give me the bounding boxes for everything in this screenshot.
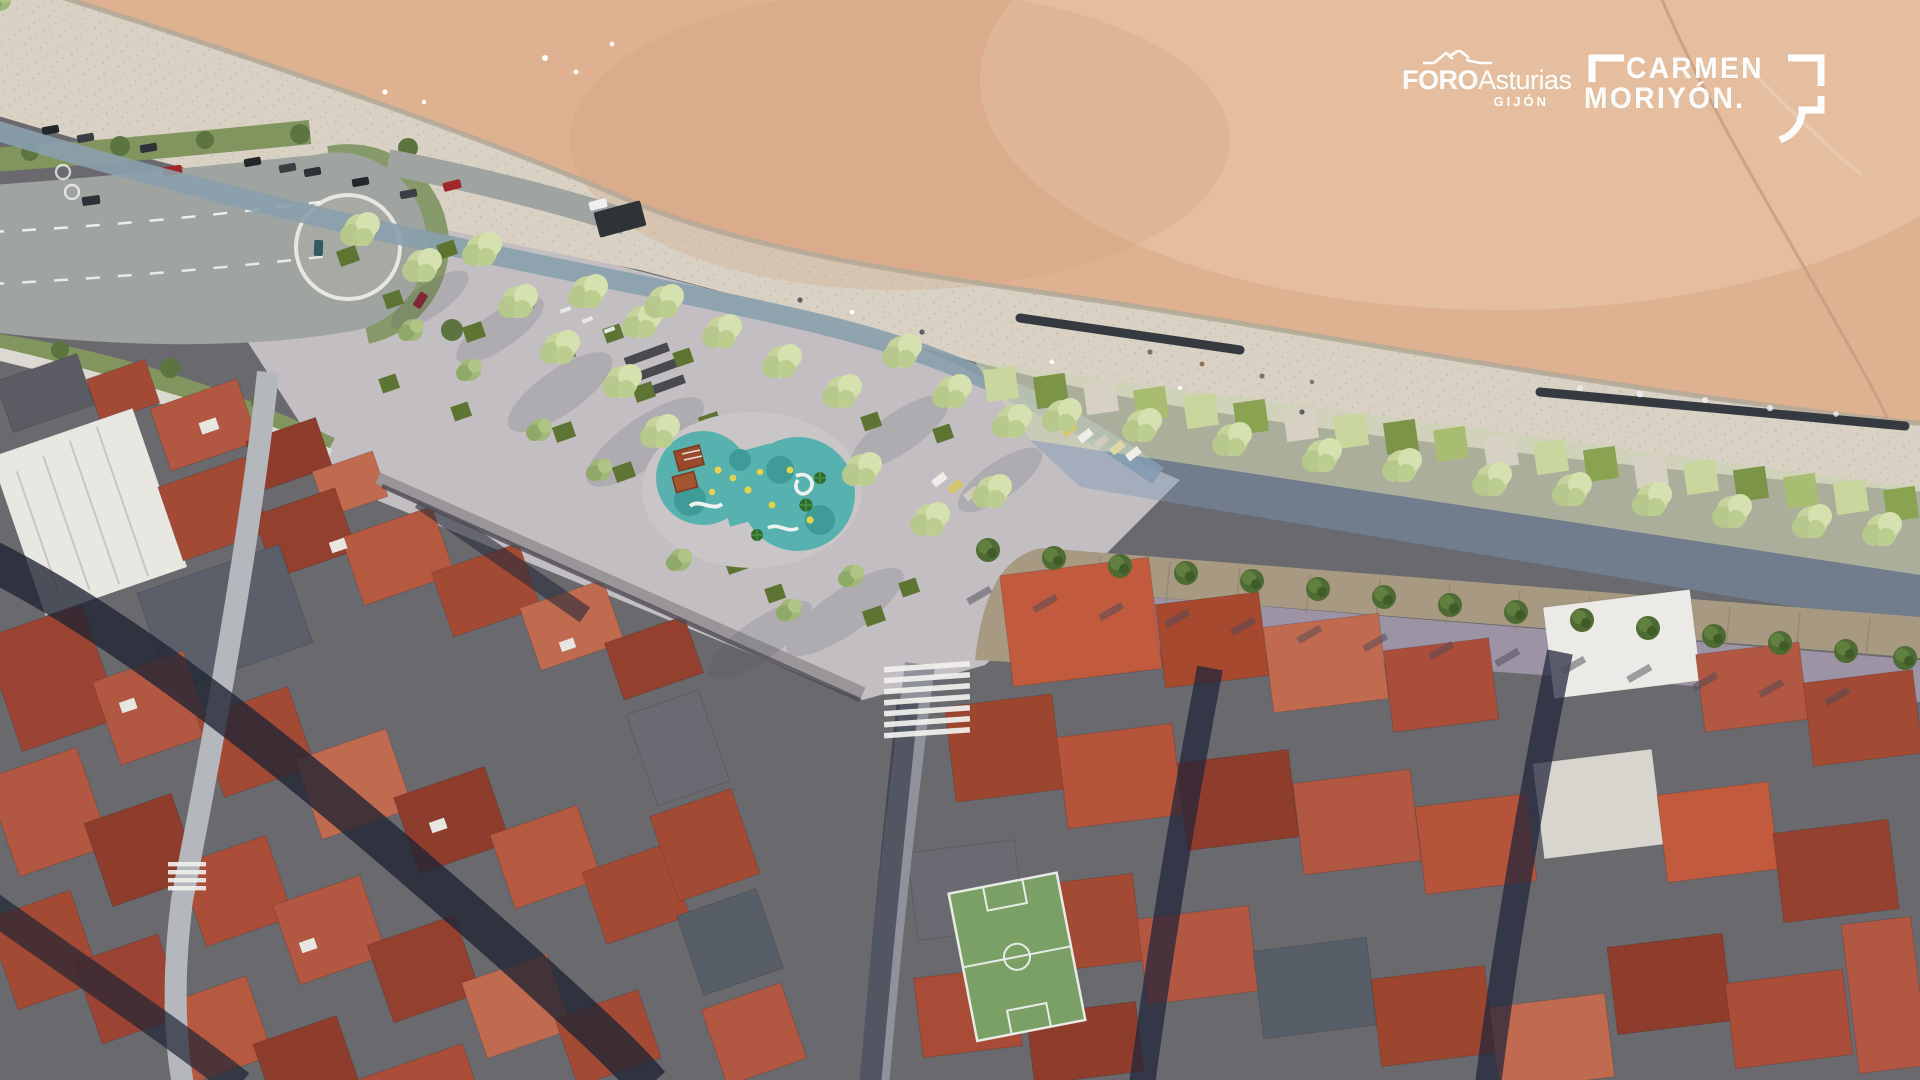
foro-brand-bold: FORO — [1402, 65, 1478, 95]
carmen-line2: MORIYÓN. — [1584, 82, 1745, 116]
roofline-zigzag-icon — [1422, 50, 1494, 66]
foro-brand-light: Asturias — [1478, 65, 1572, 95]
aerial-masterplan-view: FOROAsturias GIJÓN CARMEN MORIYÓN. — [0, 0, 1920, 1080]
carmen-line1: CARMEN — [1626, 52, 1764, 86]
logo-carmen-moriyon[interactable]: CARMEN MORIYÓN. — [1578, 46, 1828, 156]
beach-dark-patch — [570, 0, 1230, 290]
foro-city-label: GIJÓN — [1402, 94, 1552, 109]
aerial-map-canvas — [0, 0, 1920, 1080]
logo-foro-asturias[interactable]: FOROAsturias GIJÓN — [1402, 50, 1552, 109]
foro-brand-line: FOROAsturias — [1402, 67, 1552, 93]
